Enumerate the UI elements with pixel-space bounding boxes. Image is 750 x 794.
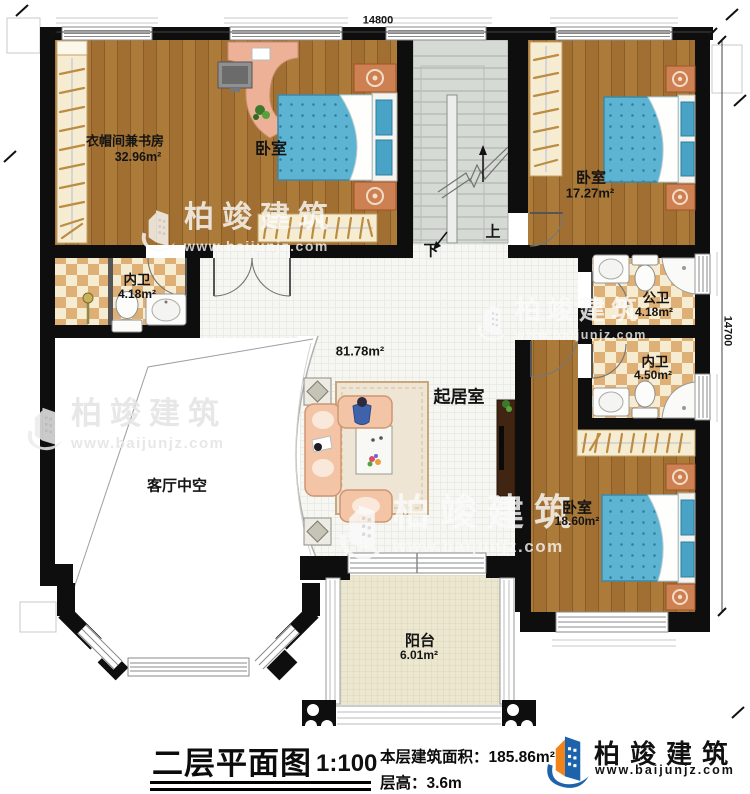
window-top-study	[62, 27, 152, 40]
shower-divider	[108, 258, 113, 325]
room-area-study: 32.96m²	[115, 151, 162, 164]
window-top-stairs	[386, 27, 486, 40]
balcony-railing-right	[500, 578, 514, 704]
bedroom-bottom-vestibule	[531, 340, 578, 430]
room-label-bedroom-top: 卧室	[255, 142, 287, 158]
stairs-up-label: 上	[485, 225, 500, 240]
toilet	[635, 381, 655, 407]
room-label-bath-public: 公卫	[643, 291, 670, 305]
pillow	[376, 140, 392, 175]
balcony-railing-left	[326, 578, 340, 704]
window-right-bath-public	[695, 254, 710, 294]
titleblock: 二层平面图 1:100 本层建筑面积：185.86m² 层高：3.6m 柏竣建筑…	[0, 726, 750, 794]
plan-title: 二层平面图	[152, 738, 312, 783]
coffee-table	[356, 426, 392, 474]
room-area-bedroom-right: 17.27m²	[566, 187, 614, 200]
window-right-bath-inner	[695, 374, 710, 420]
pillow	[681, 542, 694, 577]
window-bedroom-bottom	[556, 612, 668, 632]
tv	[499, 426, 504, 470]
brand-url: www.baijunjz.com	[595, 763, 735, 777]
room-area-living: 81.78m²	[336, 345, 384, 358]
toilet	[635, 265, 655, 291]
room-label-void: 客厅中空	[147, 479, 207, 494]
room-label-balcony: 阳台	[405, 634, 435, 649]
room-label-bedroom-right: 卧室	[576, 171, 606, 186]
room-label-living: 起居室	[434, 389, 485, 406]
pillow	[681, 142, 694, 176]
pillow	[376, 100, 392, 135]
pillow	[681, 102, 694, 136]
plan-scale: 1:100	[316, 750, 377, 778]
room-label-study: 衣帽间兼书房	[86, 135, 164, 148]
window-top-bedroom	[230, 27, 342, 40]
paper	[252, 48, 270, 60]
baijun-building-logo	[545, 733, 591, 789]
floor-area-text: 本层建筑面积：185.86m²	[380, 745, 555, 767]
stairs-down-label: 下	[423, 244, 438, 259]
room-label-bath-inner: 内卫	[642, 355, 669, 369]
stair-railing	[447, 95, 457, 243]
room-area-bath-inner: 4.50m²	[634, 369, 672, 381]
floorplan-sheet: 柏竣建筑 www.baijunjz.com 柏竣建筑 www.baijunjz.…	[0, 0, 750, 794]
staircase	[413, 40, 508, 250]
toilet-tank	[632, 255, 658, 265]
void-area	[55, 338, 300, 614]
pillow	[681, 500, 694, 535]
sink	[599, 392, 623, 412]
room-area-bedroom-bottom: 18.60m²	[555, 515, 600, 527]
room-area-balcony: 6.01m²	[400, 649, 438, 661]
room-area-bath-left: 4.18m²	[118, 288, 156, 300]
room-label-bath-left: 内卫	[124, 273, 151, 287]
floor-height-text: 层高：3.6m	[380, 771, 462, 793]
dimension-right: 14700	[722, 316, 733, 347]
dimension-top: 14800	[363, 16, 394, 27]
sink	[599, 259, 623, 279]
title-underline	[150, 781, 371, 791]
room-area-bath-public: 4.18m²	[635, 306, 673, 318]
toilet-tank	[632, 408, 658, 418]
toilet-tank	[112, 320, 142, 332]
balcony-sliding-door	[348, 553, 486, 573]
window-top-bedroom-right	[556, 27, 672, 40]
